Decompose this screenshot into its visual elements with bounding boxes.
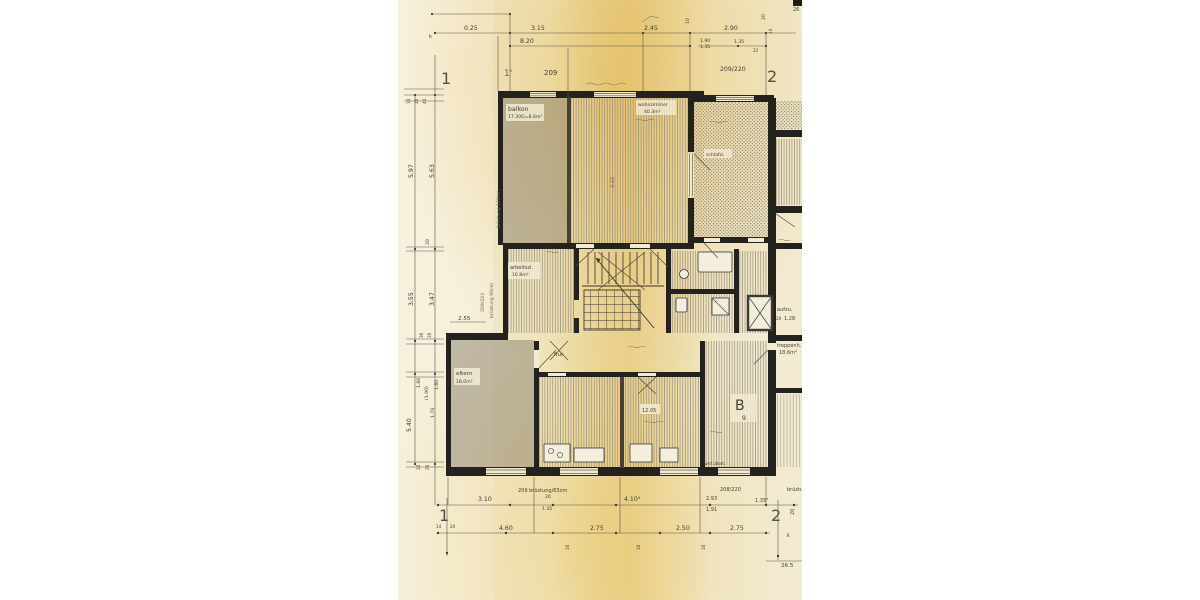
dim-label: 10 [636,544,641,550]
dim-label: (1.90) [424,386,430,400]
room-label-treppenhaus-area: 18.6m² [779,350,797,356]
dim-label: 2.45 [644,25,658,32]
dim-label: 10 [565,544,570,550]
cabinet [630,444,652,462]
room-label-flur: flur [554,352,564,358]
dim-label: 4.60 [499,525,513,532]
dim-label: 10 [701,544,706,550]
dim-label: 20 [414,98,419,104]
dim-label: 3.47 [429,292,436,306]
dim-label: 2.90 [724,25,738,32]
dim-label: 14 [768,28,773,34]
room-label-balkon: balkon [508,106,529,113]
dim-label: 3.55 [408,292,415,306]
dim-label: 1.35 [734,39,744,45]
window-code: 209/220 [720,66,746,73]
bed-symbol-count: 9 [742,415,746,422]
dim-label: 36 [419,332,424,338]
dim-label: 1.86 [416,378,422,388]
dim-label: 1.90 [700,38,710,44]
grid-axis-1-bottom: 1 [439,506,449,525]
window-code: 208/220 [720,487,741,493]
room-label-wohnzimmer: wohnzimmer [638,102,668,108]
room-label-balkon-area: 17.30G=8.6m² [508,114,542,120]
washbasin [680,270,689,279]
dim-label: 22 [753,48,759,53]
dim-label: 44 [422,98,427,104]
wc [676,298,687,312]
room-label-treppenhaus: treppenh. [777,343,802,349]
cabinet [660,448,678,462]
dim-label: 2.75 [730,525,744,532]
dim-label: k [787,533,790,539]
dim-label: 2.22 [610,177,616,188]
grid-axis-1-prime: 1' [504,69,512,79]
dim-label: 26 [793,7,799,13]
dim-label: 2.55 [458,316,471,322]
label-bruestung-90: brüstung 90cm [489,283,495,318]
floor-plan-drawing: 0.25 3.15 2.45 2.90 8.20 10 1.90 1.35 1.… [398,0,802,600]
room-label-arbeitszimmer-area: 16.8m² [512,272,529,278]
dim-label: 1.35⁵ [755,498,768,504]
kitchen-counter [544,444,570,462]
window-code: 209 [544,69,557,77]
dim-label: 5.63 [429,164,436,178]
screenshot-canvas: 0.25 3.15 2.45 2.90 8.20 10 1.90 1.35 1.… [0,0,1200,600]
dim-label: 8.20 [520,38,534,45]
room-label-schlafzimmer: schlafzi. [706,152,725,158]
dim-label: 2.93 [706,496,717,502]
label-209-223: 209/223 [480,293,486,312]
grid-axis-2-bottom: 2 [771,506,781,525]
dim-label: 1.35 [542,506,552,512]
dim-label: 14 [406,98,411,104]
dim-label: 5.97 [408,164,415,178]
dim-label: 2.50 [676,525,690,532]
dim-label: 10 [685,18,691,24]
dim-label: 20 [427,332,432,338]
window-code: brüstu [787,487,802,493]
dim-label: 20 [790,509,796,515]
window-code: 209 brüstung/65cm [518,488,567,494]
dim-label: 0.25 [464,25,478,32]
dim-label: 4.10⁵ [624,496,641,503]
dim-label: 20 [425,239,431,245]
grid-axis-2-top: 2 [767,67,777,86]
dim-label: 20 [416,464,421,470]
dim-label: 3.10 [478,496,492,503]
room-label-eltern-area: 18.0m² [456,379,473,385]
label-bruestung-120: brüstung 120cm [496,190,502,228]
dim-label: 1.76 [430,408,436,418]
dim-label: 20 [761,14,767,20]
dim-label: k [429,34,432,40]
floor-plan-paper: 0.25 3.15 2.45 2.90 8.20 10 1.90 1.35 1.… [398,0,802,600]
dim-label: 1.35 [700,44,710,50]
room-label-kind-area: 12.05 [642,408,656,414]
room-label-aufzug: aufzu. [777,307,793,313]
dim-label: 26.5 [781,563,794,569]
dim-label: 2.75 [590,525,604,532]
room-label-aufzug-dim: 1.28 [784,316,795,322]
dim-label: 26 [425,464,430,470]
room-label-arbeitszimmer: arbeitszi. [510,265,533,271]
room-label-wohnzimmer-area: 40.3m² [644,109,661,115]
grid-axis-1-top: 1 [441,69,451,88]
dim-label: 1.80 [434,380,440,390]
dim-label: 5.40 [406,418,413,432]
dim-label: 20 [545,494,551,500]
dim-label: 3.15 [531,25,545,32]
dim-label: 1.91 [706,507,717,513]
room-label-eltern: eltern [456,371,473,377]
room-label-wirtschaftsraum: wirt.abst. [704,461,726,467]
dim-label: 20 [450,524,456,529]
bed-symbol: B [735,398,745,414]
room-label-aufzug-dim20: 20 [776,316,782,321]
kitchen-counter [574,448,604,462]
